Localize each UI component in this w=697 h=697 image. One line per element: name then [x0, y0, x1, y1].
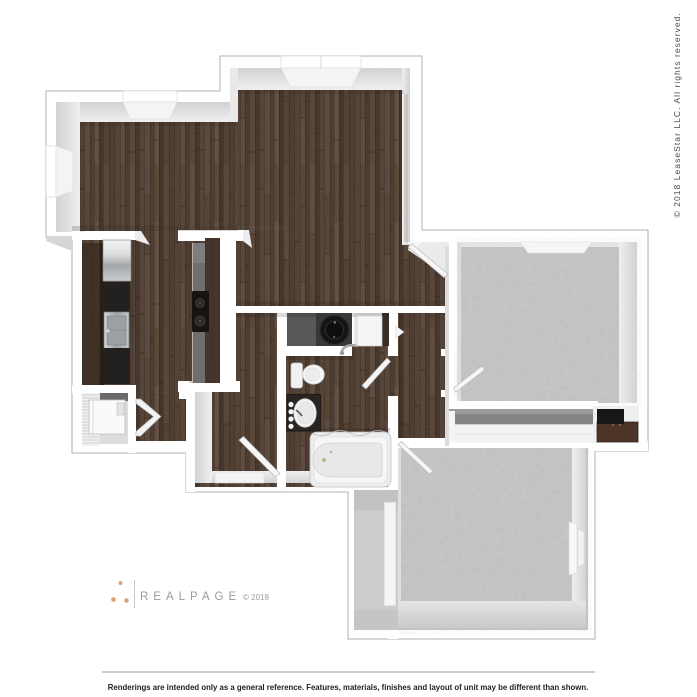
svg-text:Renderings are intended only a: Renderings are intended only as a genera… [108, 683, 589, 692]
svg-text:REALPAGE: REALPAGE [140, 591, 241, 603]
svg-text:© 2018 LeaseStar LLC. All righ: © 2018 LeaseStar LLC. All rights reserve… [672, 12, 682, 217]
svg-text:© 2018: © 2018 [243, 593, 269, 602]
